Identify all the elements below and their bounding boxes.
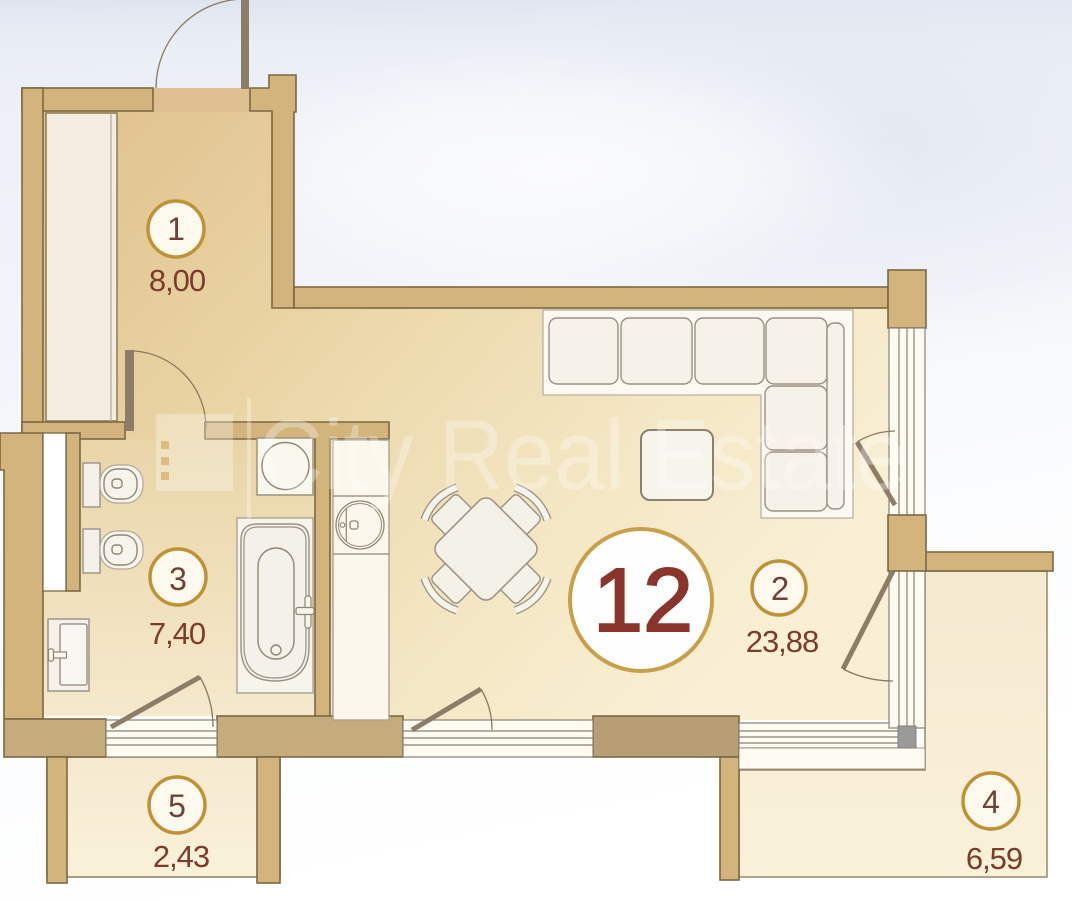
svg-text:3: 3 bbox=[169, 561, 187, 597]
svg-text:2,43: 2,43 bbox=[153, 839, 209, 874]
svg-text:23,88: 23,88 bbox=[746, 624, 819, 659]
svg-text:5: 5 bbox=[168, 788, 186, 824]
svg-text:7,40: 7,40 bbox=[149, 616, 206, 651]
svg-text:City Real Estate: City Real Estate bbox=[258, 399, 906, 510]
svg-text:6,59: 6,59 bbox=[966, 841, 1022, 876]
svg-text:12: 12 bbox=[593, 551, 693, 651]
svg-text:1: 1 bbox=[167, 211, 185, 247]
svg-text:4: 4 bbox=[982, 784, 1000, 820]
svg-text:2: 2 bbox=[771, 570, 789, 607]
svg-text:8,00: 8,00 bbox=[149, 263, 206, 298]
